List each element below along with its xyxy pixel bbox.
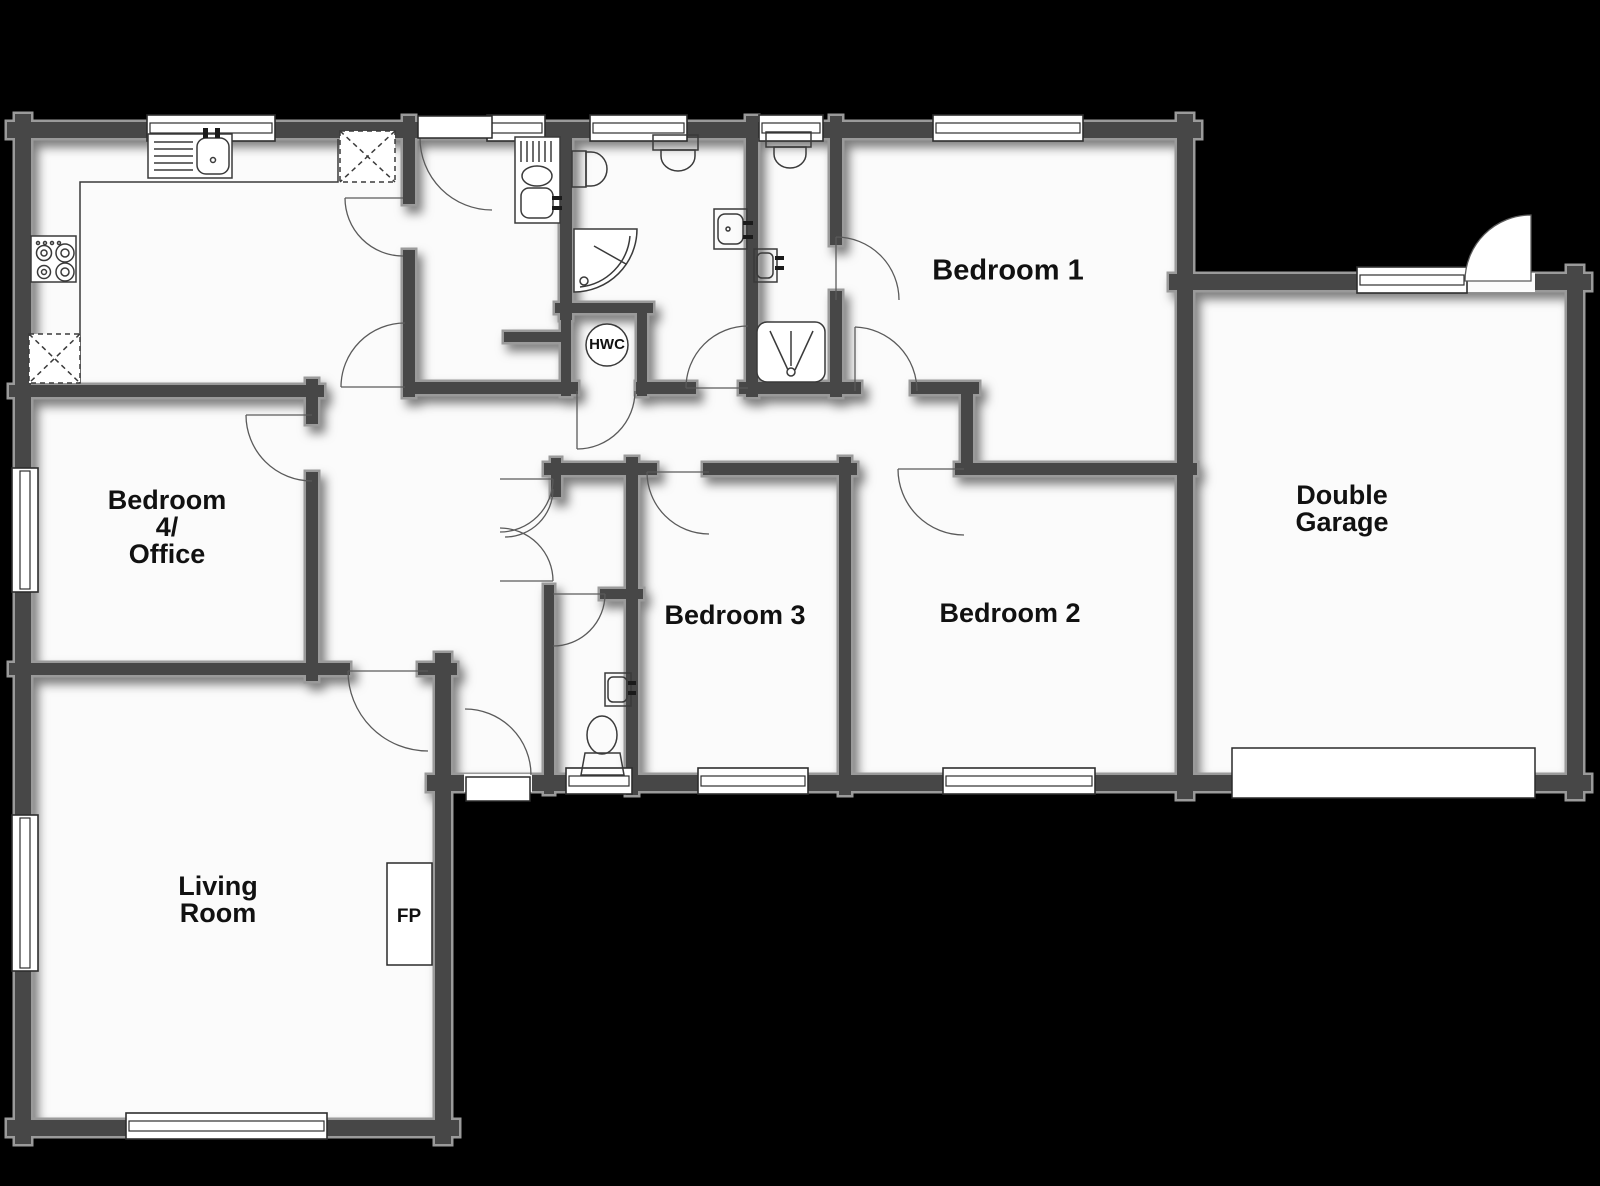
room-hall-corridor	[415, 394, 961, 463]
window-bathroom	[590, 115, 687, 141]
window-bedroom-4	[12, 468, 38, 592]
ensuite-basin-tap	[775, 256, 784, 260]
floor-plan: Bedroom 1Bedroom4/OfficeBedroom 3Bedroom…	[0, 0, 1600, 1186]
label-double-garage: Double	[1296, 480, 1388, 510]
wc-basin-tap	[628, 691, 636, 695]
label-living-room: Room	[180, 898, 257, 928]
window-garage	[1357, 267, 1467, 293]
room-hall-inner	[318, 394, 437, 663]
label-fp: FP	[397, 906, 422, 927]
window-wc	[566, 768, 632, 794]
label-hwc: HWC	[589, 336, 625, 353]
window-bedroom-2	[943, 768, 1095, 794]
bath-basin-tap	[743, 235, 753, 239]
label-bedroom-4-office: Bedroom	[108, 485, 227, 515]
utility-tap	[552, 206, 562, 210]
label-bedroom-4-office: 4/	[156, 512, 179, 542]
floor-plan-svg: Bedroom 1Bedroom4/OfficeBedroom 3Bedroom…	[0, 0, 1600, 1186]
label-bedroom-4-office: Office	[129, 539, 206, 569]
leaf-front-door	[466, 777, 530, 801]
label-double-garage: Garage	[1295, 507, 1388, 537]
ensuite-basin-tap	[775, 266, 784, 270]
window-bedroom-1	[933, 115, 1083, 141]
room-wc	[555, 600, 626, 777]
garage-vehicle-door	[1232, 748, 1535, 798]
label-living-room: Living	[178, 871, 258, 901]
bath-basin-tap	[743, 221, 753, 225]
room-entry-hall	[449, 463, 543, 777]
window-ensuite	[759, 115, 823, 141]
label-bedroom-2: Bedroom 2	[939, 598, 1080, 628]
utility-tap	[552, 196, 562, 200]
leaf-back-door	[418, 116, 492, 138]
label-bedroom-1: Bedroom 1	[932, 255, 1083, 287]
window-living-bottom	[126, 1113, 327, 1139]
window-bedroom-3	[698, 768, 808, 794]
window-living-left	[12, 815, 38, 971]
wc-basin-tap	[628, 681, 636, 685]
label-bedroom-3: Bedroom 3	[664, 600, 805, 630]
kitchen-tap	[203, 128, 208, 138]
kitchen-tap	[215, 128, 220, 138]
